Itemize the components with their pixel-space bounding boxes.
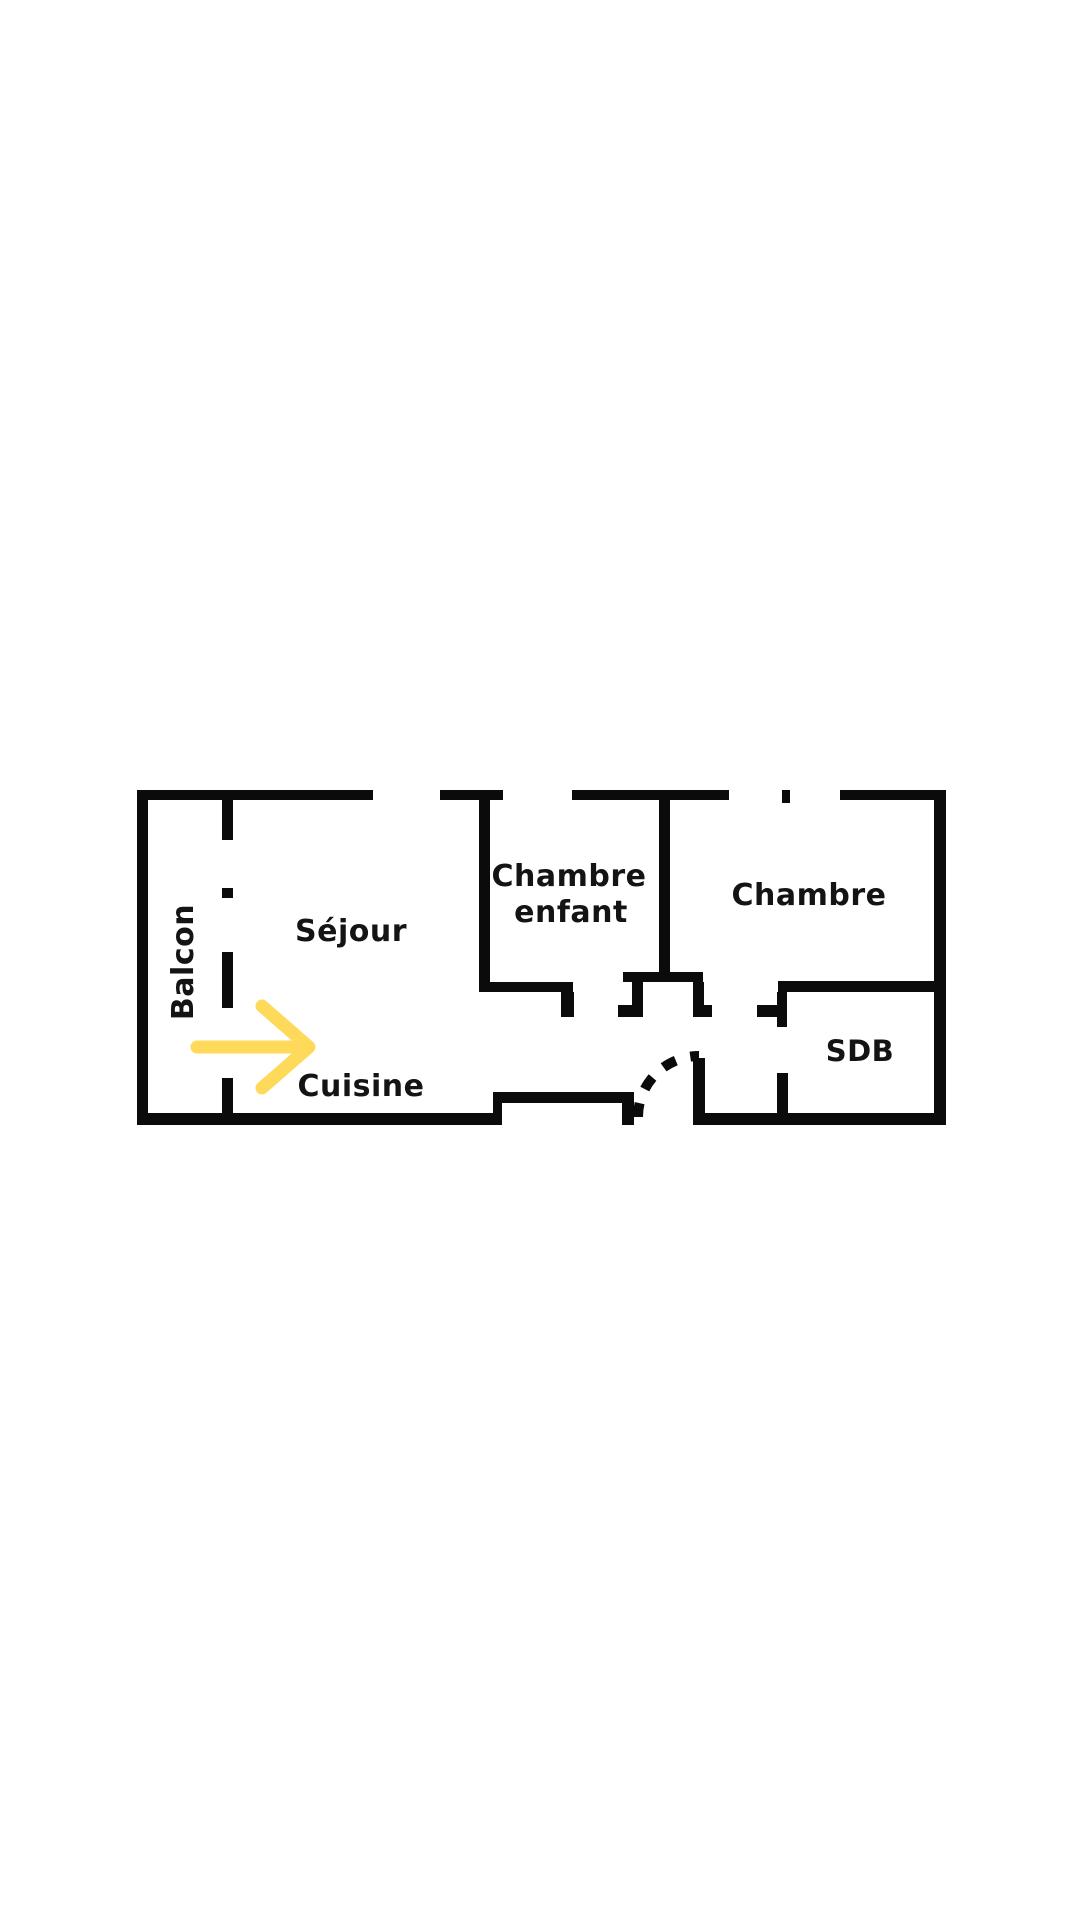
floor-plan: Balcon Séjour Chambre enfant Chambre SDB… xyxy=(0,0,1080,1920)
floorplan-walls xyxy=(137,790,946,1125)
sdb-door-upper-foot xyxy=(757,1005,787,1017)
wall-left-outer xyxy=(137,790,148,1125)
room-label-sdb: SDB xyxy=(826,1034,895,1068)
entrance-left-jamb xyxy=(622,1092,634,1125)
wall-bottom-left xyxy=(137,1113,502,1125)
chambre-enfant-door-stub xyxy=(561,992,574,1017)
sdb-top-wall xyxy=(778,981,934,992)
chambre-door-header xyxy=(623,972,703,982)
wall-top-segment-2 xyxy=(440,790,503,800)
wall-top-segment-3 xyxy=(572,790,729,800)
wall-top-segment-4 xyxy=(840,790,946,800)
chambre-enfant-bottom-wall xyxy=(479,982,573,992)
wall-top-segment-1 xyxy=(137,790,373,800)
wall-bottom-right xyxy=(693,1113,946,1125)
room-label-cuisine: Cuisine xyxy=(297,1069,424,1104)
balcony-divider-seg-3 xyxy=(222,1078,233,1113)
room-label-chambre: Chambre xyxy=(732,878,887,913)
wall-top-window-stub xyxy=(782,790,790,803)
balcony-divider-seg-1 xyxy=(222,800,233,840)
sdb-door-lower-jamb xyxy=(777,1073,788,1113)
balcony-divider-dash xyxy=(222,888,233,898)
room-label-sejour: Séjour xyxy=(295,914,407,949)
room-label-chambre-enfant-line1: Chambre xyxy=(492,859,647,894)
chambre-door-left-foot xyxy=(618,1005,643,1017)
room-label-balcon: Balcon xyxy=(166,904,201,1020)
wall-bottom-raised xyxy=(493,1092,634,1103)
balcony-divider-seg-2 xyxy=(222,952,233,1008)
room-label-chambre-enfant-line2: enfant xyxy=(514,895,628,930)
entrance-door-arc xyxy=(638,1056,699,1117)
highlight-arrow xyxy=(197,1006,309,1088)
chambre-divider-wall xyxy=(659,800,670,972)
floor-plan-page: Balcon Séjour Chambre enfant Chambre SDB… xyxy=(0,0,1080,1920)
wall-right-outer xyxy=(934,790,946,1125)
chambre-door-right-foot xyxy=(693,1005,712,1017)
sejour-divider-wall xyxy=(479,800,490,982)
